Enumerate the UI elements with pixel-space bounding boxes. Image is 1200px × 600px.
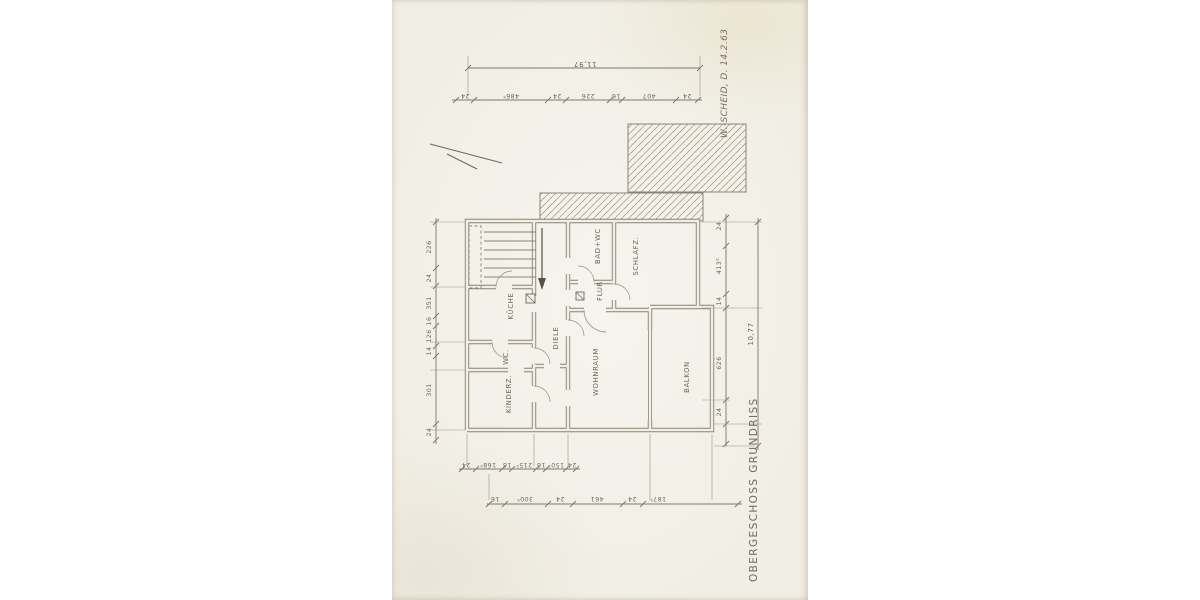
dim-left-3: 16 bbox=[426, 317, 433, 326]
dim-top-0: 24 bbox=[461, 92, 470, 99]
dim-left-6: 301 bbox=[426, 383, 433, 396]
drawing-title: OBERGESCHOSS GRUNDRISS bbox=[748, 397, 760, 582]
room-label-diele: DIELE bbox=[552, 326, 560, 349]
room-label-wohnraum: WOHNRAUM bbox=[592, 348, 600, 396]
room-labels: KÜCHE DIELE BAD+WC FLUR SCHLAFZ. WC. KIN… bbox=[502, 228, 691, 413]
dim-left-1: 24 bbox=[426, 274, 433, 283]
dim-top-2: 24 bbox=[553, 92, 562, 99]
dim-top-1: 486⁵ bbox=[503, 92, 519, 99]
dim-right-overall: 10,77 bbox=[747, 322, 755, 345]
dim-line-left-chain bbox=[433, 218, 439, 444]
dim-binner-3: 215² bbox=[516, 461, 532, 468]
witness-line-paths bbox=[430, 56, 762, 500]
room-label-kinderz: KINDERZ. bbox=[505, 375, 513, 413]
floor-plan-drawing: 11,97 24 486⁵ 24 226 16 407 24 226 24 35… bbox=[0, 0, 1200, 600]
hatched-roof-strip bbox=[540, 193, 703, 221]
room-label-wc: WC. bbox=[502, 349, 510, 365]
dim-right-0: 24 bbox=[716, 222, 723, 231]
dim-left-0: 226 bbox=[426, 240, 433, 253]
scanned-floor-plan-page: { "annotations": { "title": "OBERGESCHOS… bbox=[0, 0, 1200, 600]
dim-bouter-5: 187⁵ bbox=[650, 495, 666, 502]
dim-binner-6: 24 bbox=[568, 461, 577, 468]
dim-bouter-2: 24 bbox=[556, 495, 565, 502]
dim-left-4: 126 bbox=[426, 329, 433, 342]
dim-left-5: 14 bbox=[426, 347, 433, 356]
room-label-schlafz: SCHLAFZ. bbox=[632, 236, 640, 275]
dim-labels-bottom: 24 168⁵ 16 215² 16 150¹ 24 16 300⁵ 24 46… bbox=[462, 461, 666, 502]
dim-bouter-3: 461 bbox=[590, 495, 603, 502]
dim-bouter-4: 24 bbox=[628, 495, 637, 502]
dim-right-4: 24 bbox=[716, 408, 723, 417]
room-label-kueche: KÜCHE bbox=[506, 293, 515, 320]
hatched-roof-areas bbox=[540, 124, 746, 221]
witness-lines bbox=[430, 56, 762, 500]
signature-date: W.-SCHEID, D. 14.2.63 bbox=[720, 29, 730, 138]
pencil-stray-marks bbox=[430, 144, 502, 169]
balcony-window-lines bbox=[649, 330, 652, 420]
dim-top-4: 16 bbox=[612, 92, 621, 99]
dim-right-2: 14 bbox=[716, 297, 723, 306]
dim-line-top-chain bbox=[452, 97, 702, 103]
dim-bouter-1: 300⁵ bbox=[517, 495, 533, 502]
dim-top-5: 407 bbox=[642, 92, 655, 99]
dim-right-1: 413⁵ bbox=[716, 258, 723, 274]
walls bbox=[467, 221, 712, 430]
dim-top-overall: 11,97 bbox=[573, 60, 596, 68]
dashed-landing-outline bbox=[469, 226, 481, 288]
dim-top-6: 24 bbox=[683, 92, 692, 99]
dim-binner-2: 16 bbox=[503, 461, 512, 468]
dim-bouter-0: 16 bbox=[491, 495, 500, 502]
wall-outline-outer bbox=[467, 221, 712, 430]
dim-left-7: 24 bbox=[426, 428, 433, 437]
dim-labels-top: 11,97 24 486⁵ 24 226 16 407 24 bbox=[461, 60, 692, 99]
dim-binner-4: 16 bbox=[537, 461, 546, 468]
dim-line-right-chain bbox=[723, 214, 729, 447]
dim-binner-0: 24 bbox=[462, 461, 471, 468]
room-label-bad-wc: BAD+WC bbox=[594, 228, 602, 264]
dim-labels-left: 226 24 351 16 126 14 301 24 bbox=[426, 240, 433, 436]
dim-binner-1: 168⁵ bbox=[480, 461, 496, 468]
wall-outline-inner bbox=[467, 221, 712, 430]
chimney-symbols bbox=[526, 292, 584, 303]
dim-top-3: 226 bbox=[581, 92, 594, 99]
dim-labels-right: 24 413⁵ 14 626 24 10,77 bbox=[716, 222, 755, 417]
room-label-flur: FLUR bbox=[596, 281, 604, 301]
room-label-balkon: BALKON bbox=[683, 361, 691, 393]
stair-arrow-head bbox=[538, 278, 546, 290]
stair-treads bbox=[484, 232, 536, 277]
dim-right-3: 626 bbox=[716, 356, 723, 369]
dim-binner-5: 150¹ bbox=[548, 461, 564, 468]
dim-left-2: 351 bbox=[426, 296, 433, 309]
